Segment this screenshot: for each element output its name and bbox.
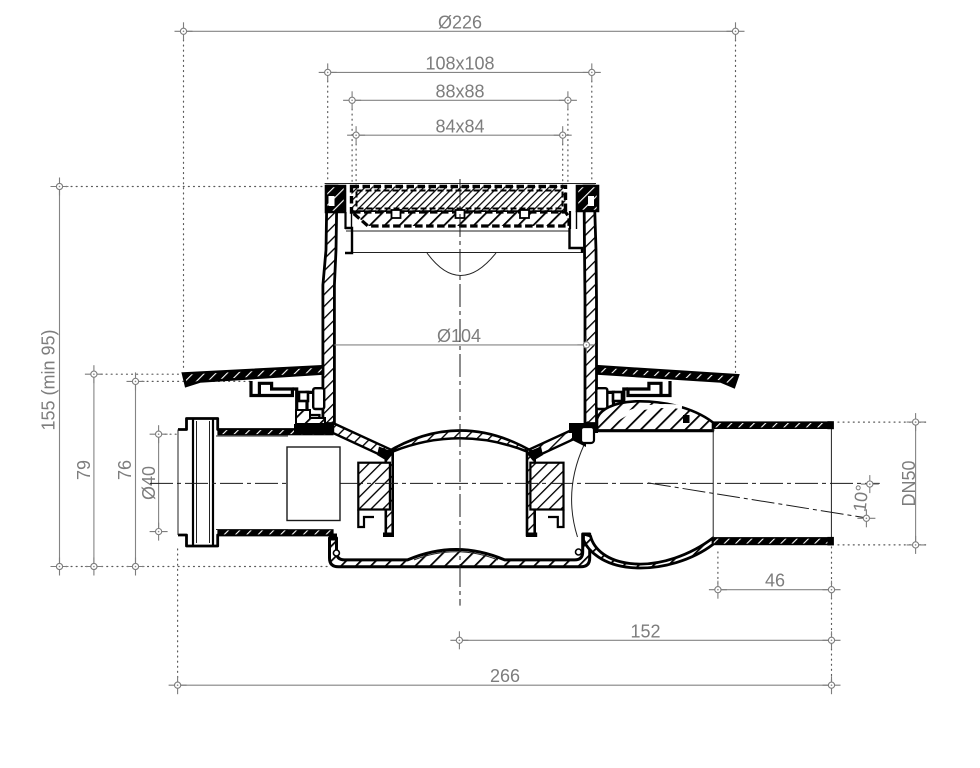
svg-text:266: 266 <box>490 666 520 686</box>
svg-text:10°: 10° <box>849 484 872 513</box>
svg-text:152: 152 <box>630 621 660 641</box>
svg-text:DN50: DN50 <box>899 460 919 506</box>
svg-text:88x88: 88x88 <box>435 82 484 102</box>
svg-text:108x108: 108x108 <box>425 54 494 74</box>
svg-text:79: 79 <box>74 460 94 480</box>
svg-text:Ø104: Ø104 <box>437 326 481 346</box>
svg-text:76: 76 <box>115 460 135 480</box>
svg-text:Ø226: Ø226 <box>438 13 482 33</box>
svg-text:155 (min 95): 155 (min 95) <box>39 329 59 430</box>
svg-text:46: 46 <box>765 571 785 591</box>
svg-text:84x84: 84x84 <box>435 116 484 136</box>
